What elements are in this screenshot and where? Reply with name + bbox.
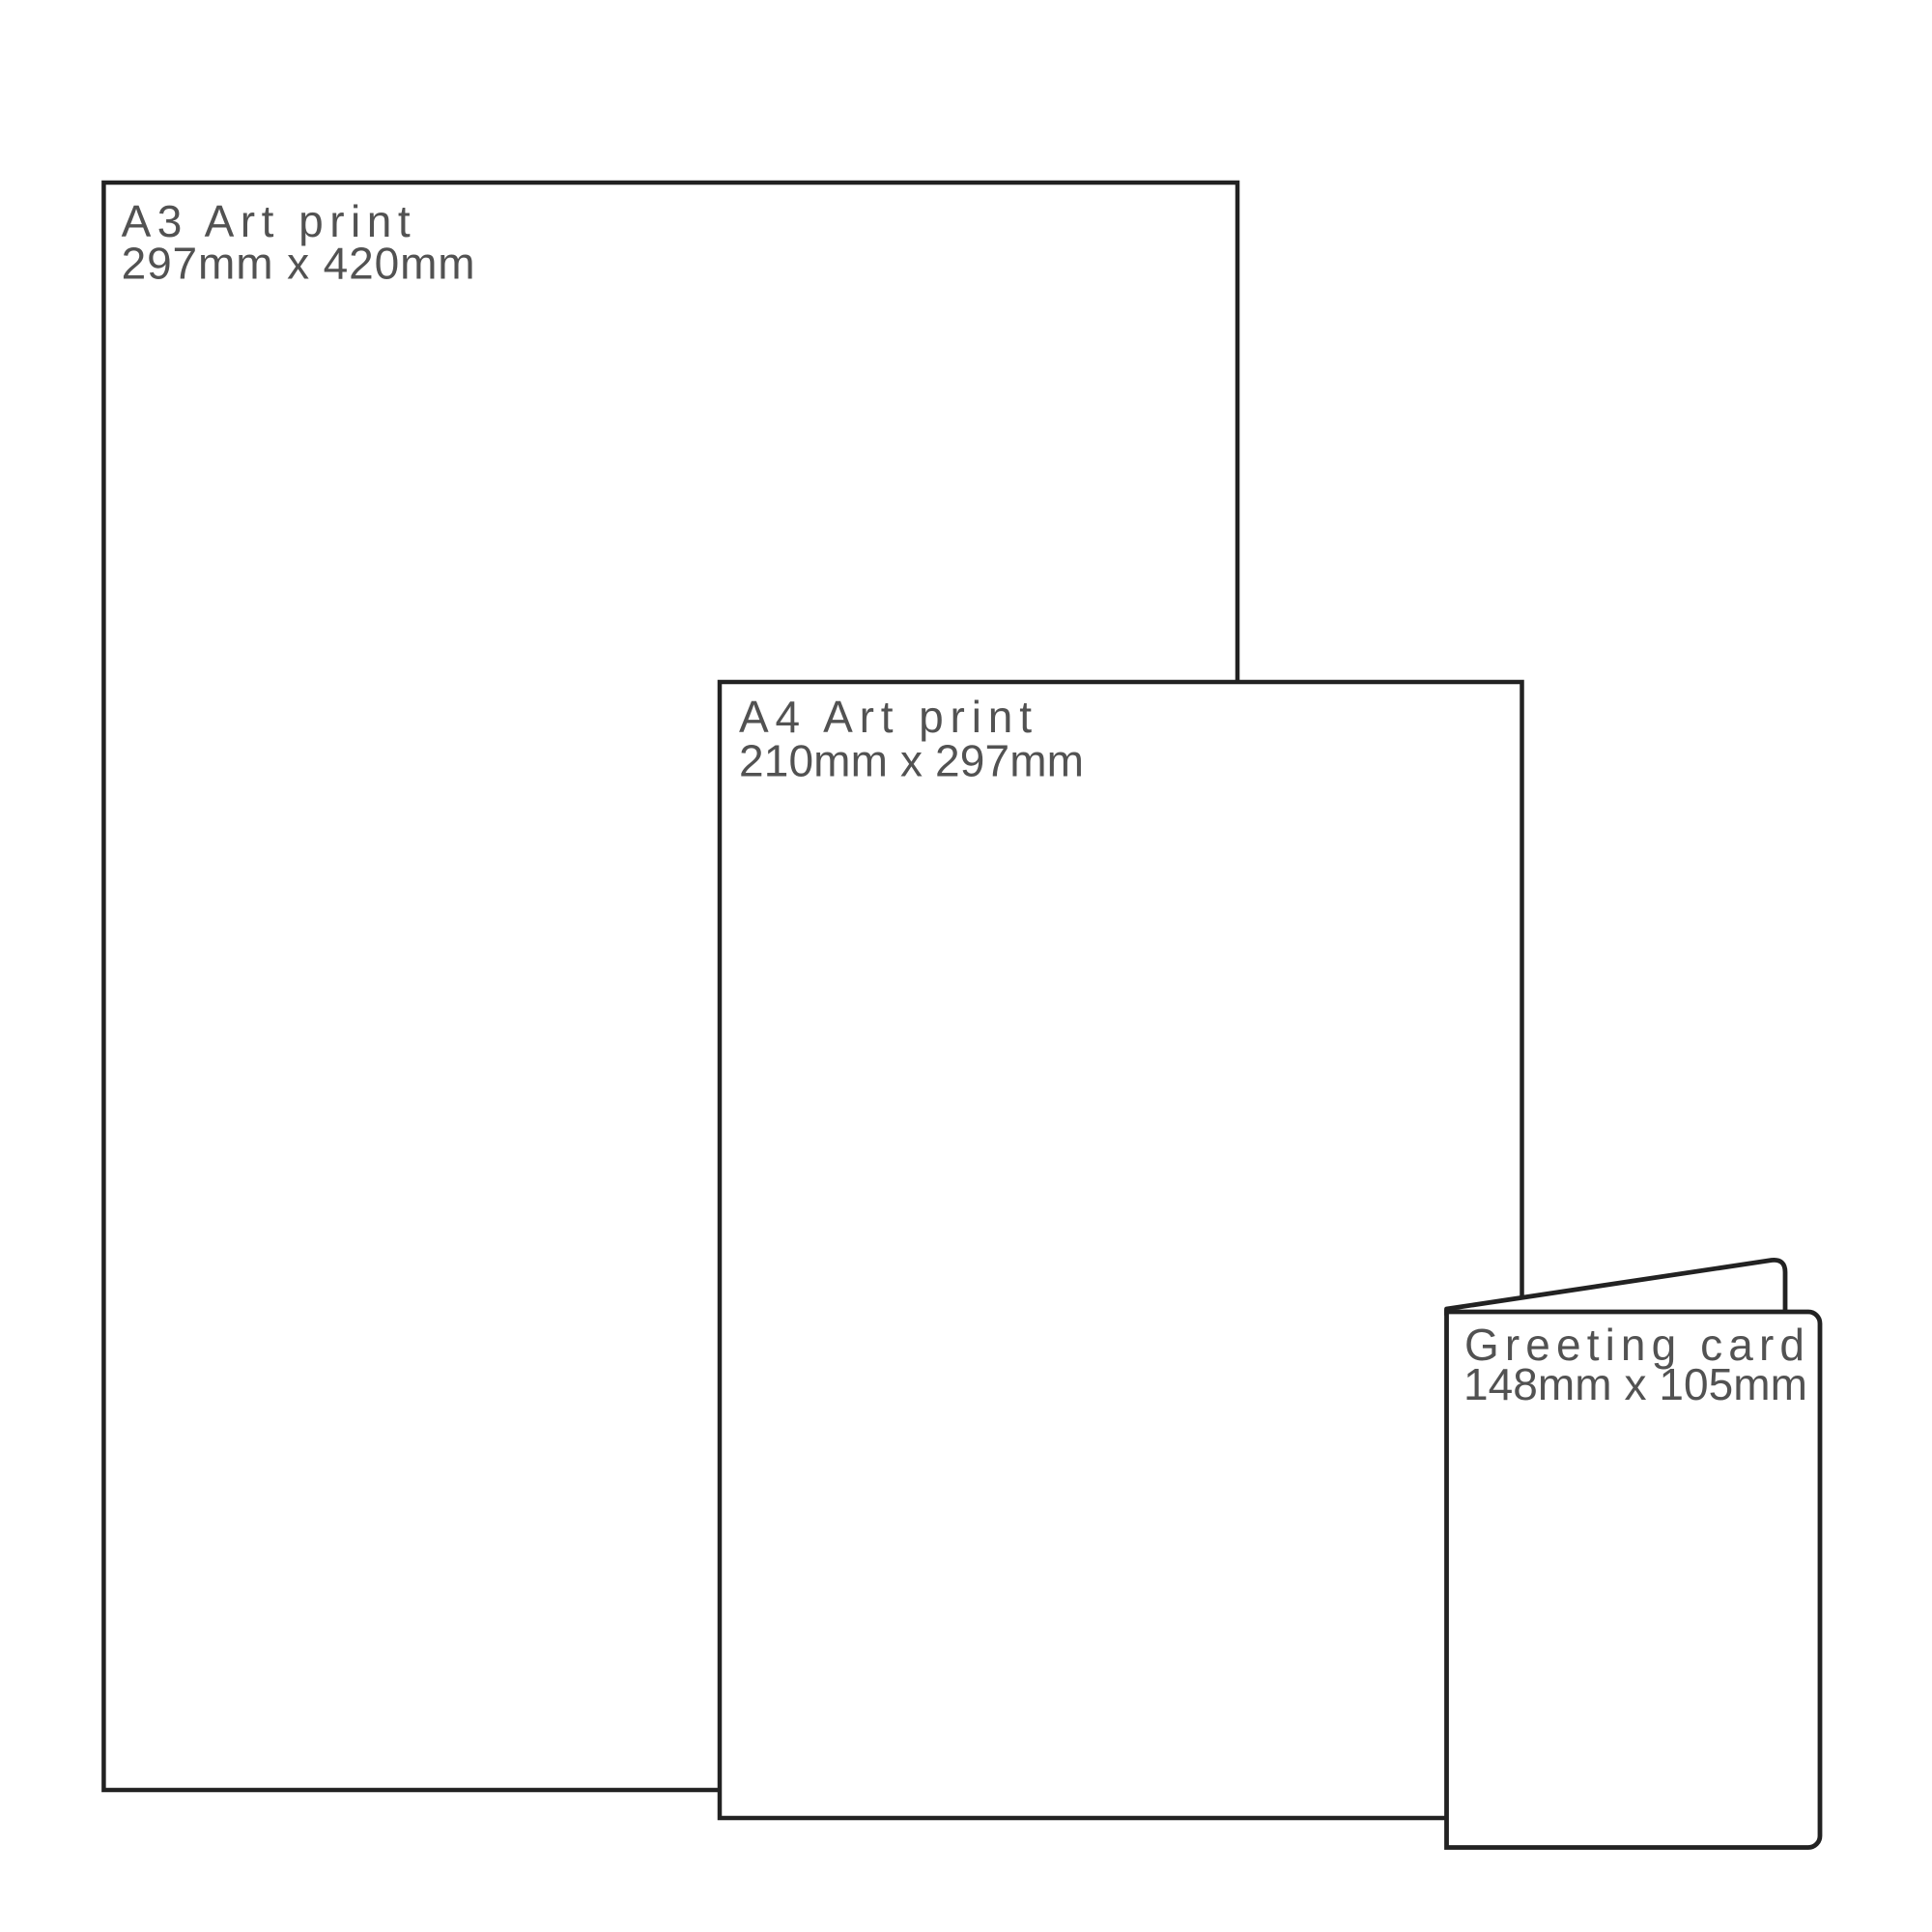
svg-text:210mm x 297mm: 210mm x 297mm: [739, 736, 1084, 786]
svg-text:297mm x 420mm: 297mm x 420mm: [122, 239, 475, 289]
svg-text:A4 Art print: A4 Art print: [739, 692, 1032, 742]
svg-text:148mm x 105mm: 148mm x 105mm: [1463, 1359, 1807, 1409]
